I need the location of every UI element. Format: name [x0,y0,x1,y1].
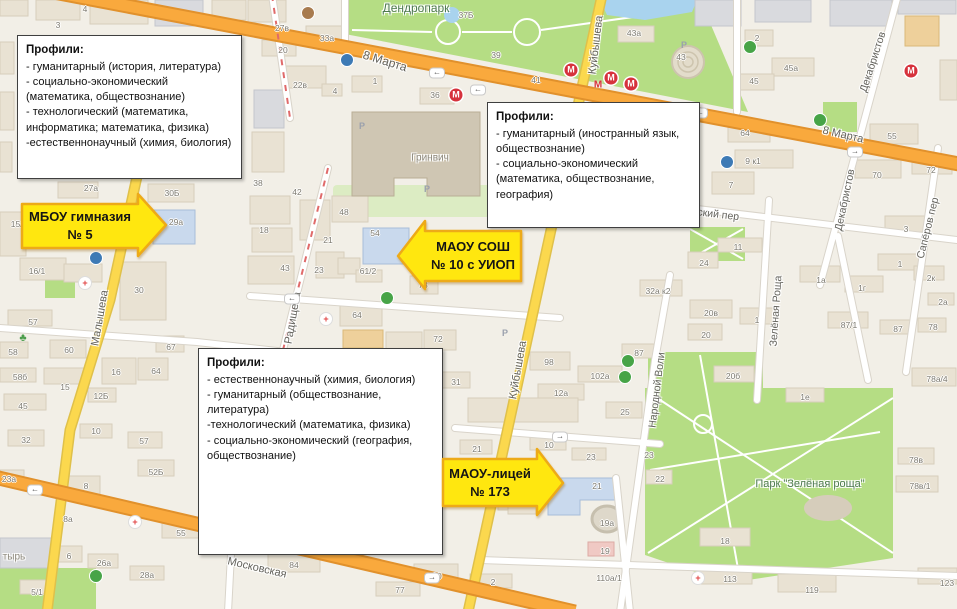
profile-item: -технологический (математика, физика) [207,418,434,433]
callout-title: Профили: [496,110,691,126]
callout-title: Профили: [207,356,434,372]
profile-item: - технологический (математика, информати… [26,105,233,135]
profile-item: - гуманитарный (иностранный язык, общест… [496,127,691,157]
school-label-text: МАОУ-лицей № 173 [443,459,537,506]
school-number: № 10 с УИОП [431,256,515,274]
profile-item: - социально-экономический (география, об… [207,434,434,464]
school-name: МБОУ гимназия [29,208,131,226]
annotated-map-screenshot: 8 Марта8 МартаМосковскаяКуйбышеваКуйбыше… [0,0,957,609]
school-name: МАОУ СОШ [436,238,510,256]
profile-item: -естественнонаучный (химия, биология) [26,136,233,151]
profile-callout-sosh-10: Профили: - гуманитарный (иностранный язы… [487,102,700,228]
school-number: № 5 [67,226,92,244]
school-label-text: МБОУ гимназия № 5 [22,204,138,248]
school-label-text: МАОУ СОШ № 10 с УИОП [425,231,521,281]
profile-callout-licey-173: Профили: - естественнонаучный (химия, би… [198,348,443,555]
school-number: № 173 [470,483,510,501]
school-name: МАОУ-лицей [449,465,531,483]
profile-item: - гуманитарный (история, литература) [26,60,233,75]
school-label-gimnaziya-5: МБОУ гимназия № 5 [20,192,168,258]
profile-item: - гуманитарный (обществознание, литерату… [207,388,434,418]
school-label-licey-173: МАОУ-лицей № 173 [441,447,567,519]
school-label-sosh-10: МАОУ СОШ № 10 с УИОП [394,218,524,293]
profile-item: - социально-экономический (математика, о… [26,75,233,105]
callout-title: Профили: [26,43,233,59]
profile-item: - естественнонаучный (химия, биология) [207,373,434,388]
profile-item: - социально-экономический (математика, о… [496,157,691,203]
profile-callout-gimnaziya-5: Профили: - гуманитарный (история, литера… [17,35,242,179]
